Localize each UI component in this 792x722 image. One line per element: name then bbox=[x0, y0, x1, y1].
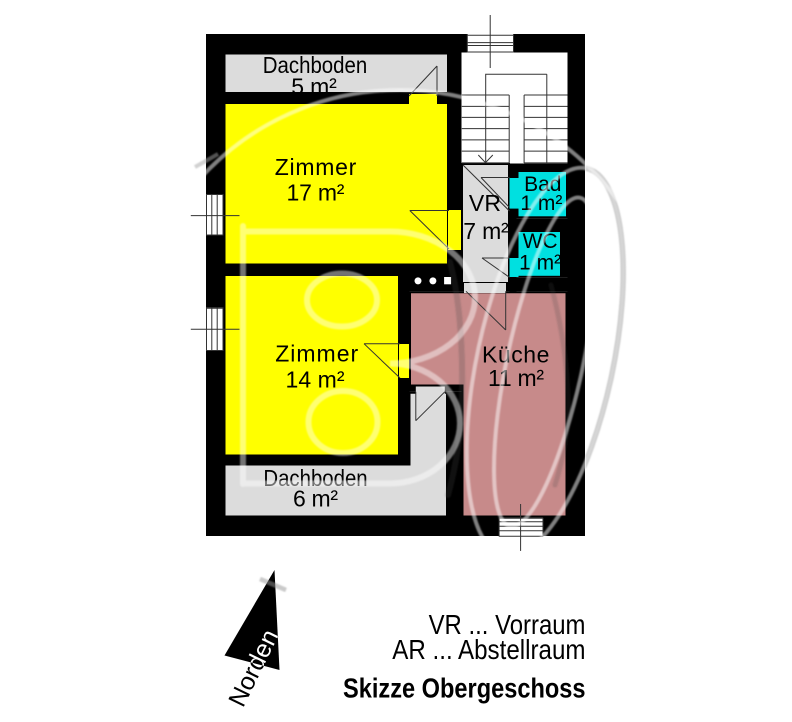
svg-text:Küche: Küche bbox=[482, 341, 549, 367]
svg-text:Zimmer: Zimmer bbox=[275, 154, 357, 180]
svg-text:AR ... Abstellraum: AR ... Abstellraum bbox=[392, 634, 585, 665]
svg-text:7 m²: 7 m² bbox=[463, 218, 509, 244]
svg-text:17 m²: 17 m² bbox=[287, 180, 345, 206]
svg-text:11 m²: 11 m² bbox=[488, 365, 544, 391]
svg-text:Skizze Obergeschoss: Skizze Obergeschoss bbox=[343, 673, 586, 704]
svg-text:5 m²: 5 m² bbox=[291, 74, 337, 100]
svg-text:Zimmer: Zimmer bbox=[275, 341, 358, 367]
svg-text:VR: VR bbox=[469, 190, 501, 216]
svg-text:1 m²: 1 m² bbox=[519, 252, 561, 275]
svg-text:6 m²: 6 m² bbox=[293, 486, 338, 512]
svg-text:14 m²: 14 m² bbox=[286, 366, 345, 392]
